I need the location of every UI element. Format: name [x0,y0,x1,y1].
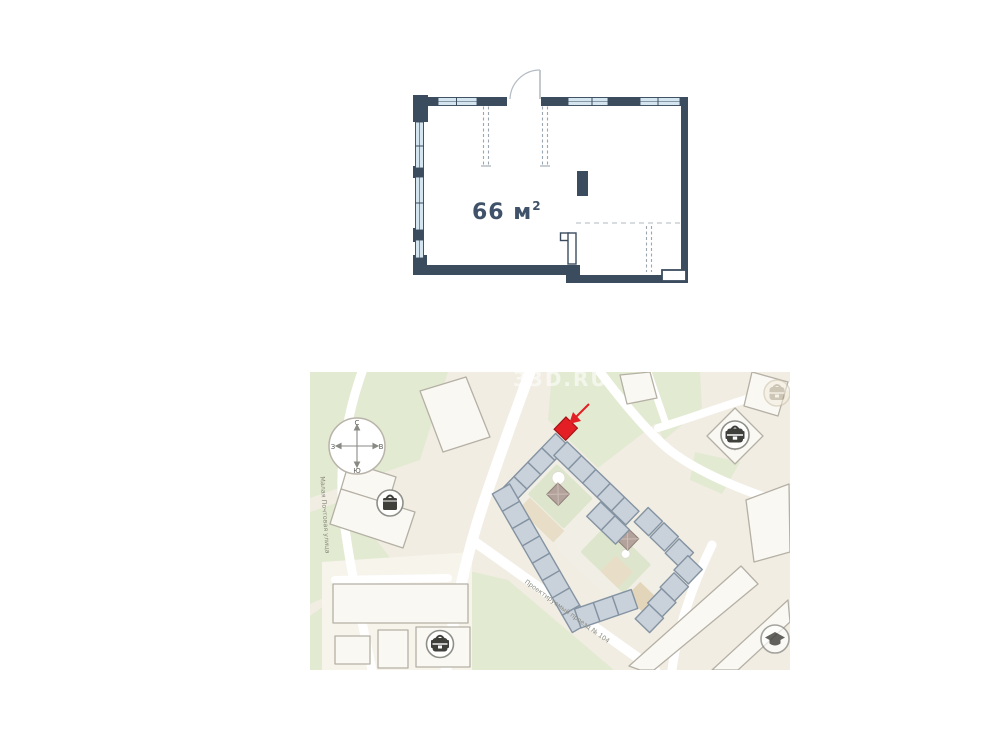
compass-east-label: В [379,443,384,451]
window-mullions [416,98,681,259]
area-label: 66 м2 [472,199,542,225]
entrance-door [510,70,540,99]
site-map: С Ю З В [310,372,790,670]
area-value: 66 м [472,200,532,225]
backpack-icon [764,380,790,406]
compass-north-label: С [355,419,360,427]
shaft-column [577,171,588,196]
building [378,630,408,668]
page: { "floor_plan": { "area_value": "66 м", … [0,0,1000,750]
backpack-icon [427,631,454,658]
bag-icon [377,490,403,516]
backpack-icon [721,421,749,449]
floor-plan: 66 м2 [405,58,700,303]
graduation-cap-icon [761,625,789,653]
niche [662,270,686,281]
door-arc [510,70,540,99]
compass-south-label: Ю [353,467,361,475]
compass: С Ю З В [329,418,385,475]
watermark: 33D.RU [513,372,609,391]
building [333,584,468,623]
floor-plan-windows [416,98,681,259]
building [335,636,370,664]
area-superscript: 2 [532,199,541,213]
building [620,372,657,404]
compass-west-label: З [331,443,336,451]
